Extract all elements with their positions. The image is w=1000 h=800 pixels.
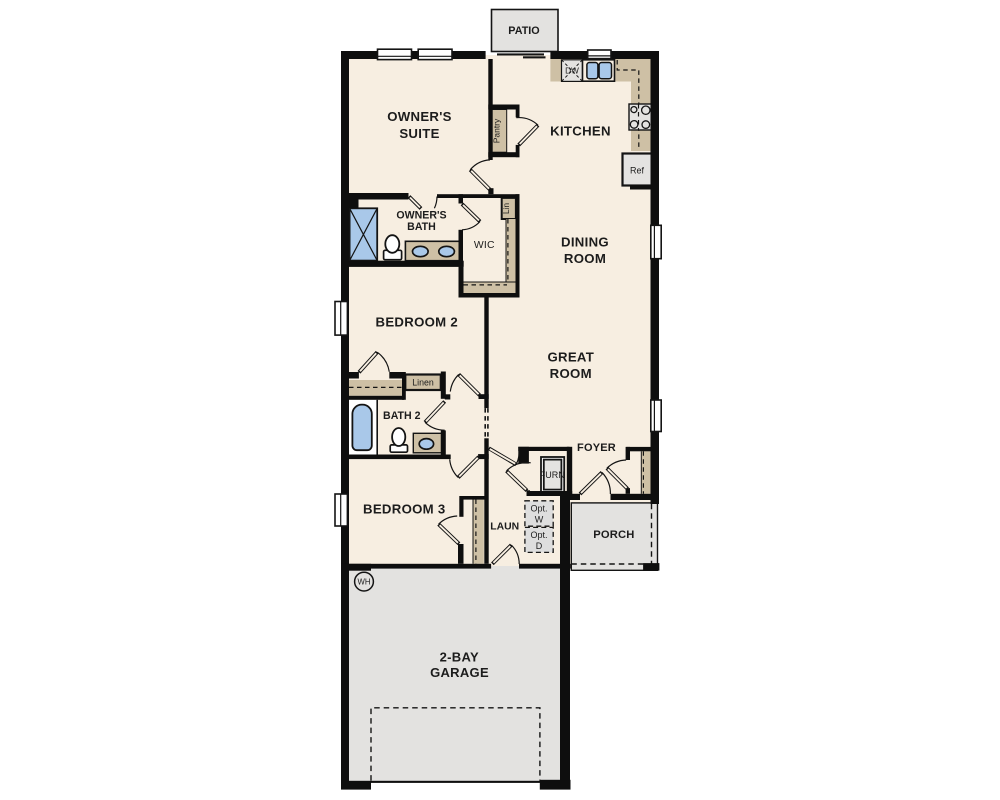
svg-text:KITCHEN: KITCHEN — [550, 123, 611, 138]
svg-text:OWNER'S: OWNER'S — [396, 210, 446, 222]
svg-text:2-BAY: 2-BAY — [440, 649, 479, 664]
svg-text:ROOM: ROOM — [550, 366, 592, 381]
svg-text:BEDROOM 2: BEDROOM 2 — [376, 315, 459, 330]
svg-text:Lin: Lin — [501, 203, 511, 215]
svg-text:GREAT: GREAT — [547, 350, 594, 365]
svg-text:PATIO: PATIO — [508, 25, 539, 37]
svg-text:BATH: BATH — [407, 221, 436, 233]
svg-text:D: D — [536, 541, 543, 551]
svg-text:W: W — [535, 515, 544, 525]
svg-text:FURN: FURN — [540, 470, 565, 480]
svg-text:PORCH: PORCH — [593, 529, 634, 541]
svg-text:DW: DW — [565, 67, 579, 76]
svg-text:WH: WH — [358, 578, 371, 587]
svg-text:WIC: WIC — [474, 240, 495, 251]
svg-text:Opt.: Opt. — [530, 503, 547, 513]
svg-text:Opt.: Opt. — [530, 530, 547, 540]
svg-text:Ref: Ref — [630, 166, 645, 176]
svg-text:BEDROOM 3: BEDROOM 3 — [363, 502, 446, 517]
svg-text:FOYER: FOYER — [577, 442, 616, 454]
svg-text:DINING: DINING — [561, 235, 609, 250]
svg-text:ROOM: ROOM — [564, 251, 606, 266]
svg-text:BATH 2: BATH 2 — [383, 410, 421, 422]
svg-text:SUITE: SUITE — [399, 126, 439, 141]
svg-text:OWNER'S: OWNER'S — [387, 109, 452, 124]
svg-text:Pantry: Pantry — [491, 118, 501, 143]
svg-text:Linen: Linen — [412, 378, 434, 388]
svg-text:GARAGE: GARAGE — [430, 665, 489, 680]
svg-text:LAUN: LAUN — [490, 522, 519, 533]
